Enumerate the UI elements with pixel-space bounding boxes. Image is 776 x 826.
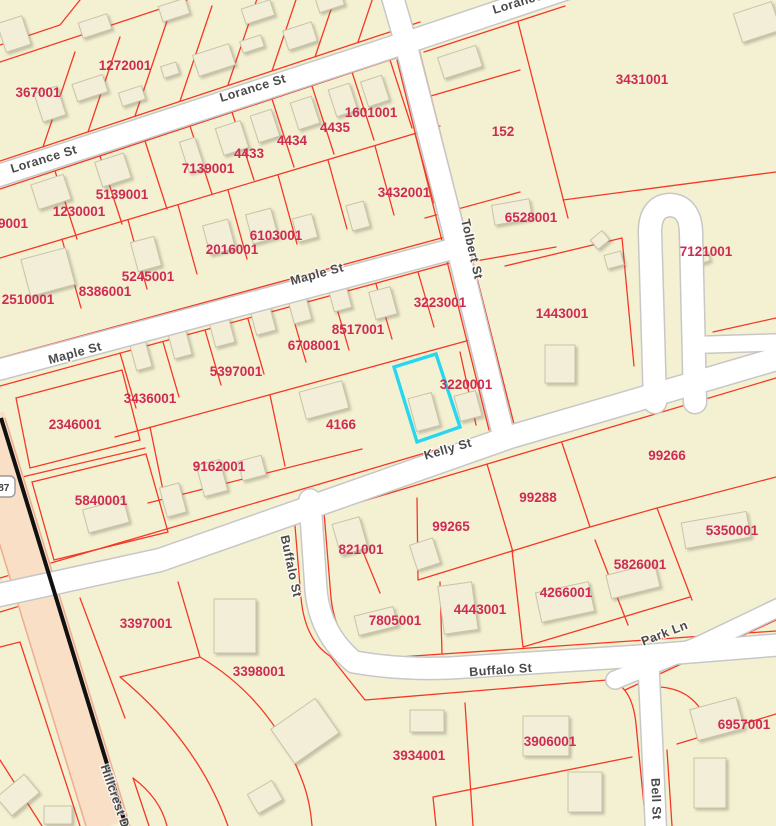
parcel-label-3398001[interactable]: 3398001 xyxy=(233,664,286,679)
parcel-label-3397001[interactable]: 3397001 xyxy=(120,616,173,631)
parcel-label-5397001[interactable]: 5397001 xyxy=(210,364,263,379)
parcel-label-6103001[interactable]: 6103001 xyxy=(250,228,303,243)
parcel-label-99265[interactable]: 99265 xyxy=(432,519,470,534)
street-label-bell-st: Bell St xyxy=(648,778,663,821)
parcel-label-5350001[interactable]: 5350001 xyxy=(706,523,759,538)
route-shield-label: 287 xyxy=(0,483,10,494)
parcel-label-9001[interactable]: 9001 xyxy=(0,216,29,231)
parcel-label-5840001[interactable]: 5840001 xyxy=(75,493,128,508)
parcel-label-7805001[interactable]: 7805001 xyxy=(369,613,422,628)
parcel-label-1230001[interactable]: 1230001 xyxy=(53,204,106,219)
building xyxy=(568,772,602,812)
parcel-label-367001[interactable]: 367001 xyxy=(15,85,61,100)
building xyxy=(214,599,256,653)
parcel-label-3223001[interactable]: 3223001 xyxy=(414,295,467,310)
parcel-label-3432001[interactable]: 3432001 xyxy=(378,185,431,200)
parcel-label-99266[interactable]: 99266 xyxy=(648,448,686,463)
parcel-label-7121001[interactable]: 7121001 xyxy=(680,244,733,259)
parcel-label-6957001[interactable]: 6957001 xyxy=(718,717,771,732)
parcel-label-7139001[interactable]: 7139001 xyxy=(182,161,235,176)
parcel-label-4434[interactable]: 4434 xyxy=(277,133,308,148)
parcel-label-5826001[interactable]: 5826001 xyxy=(614,557,667,572)
parcel-label-2016001[interactable]: 2016001 xyxy=(206,242,259,257)
parcel-label-4433[interactable]: 4433 xyxy=(234,146,265,161)
parcel-label-4443001[interactable]: 4443001 xyxy=(454,602,507,617)
parcel-label-6528001[interactable]: 6528001 xyxy=(505,210,558,225)
parcel-label-3906001[interactable]: 3906001 xyxy=(524,734,577,749)
map-svg: 287 Lorance StLorance StLorance StMaple … xyxy=(0,0,776,826)
building xyxy=(545,345,575,383)
parcel-label-8386001[interactable]: 8386001 xyxy=(79,284,132,299)
parcel-label-5245001[interactable]: 5245001 xyxy=(122,269,175,284)
parcel-label-9162001[interactable]: 9162001 xyxy=(193,459,246,474)
parcel-label-4166[interactable]: 4166 xyxy=(326,417,357,432)
building xyxy=(410,710,444,732)
parcel-label-4435[interactable]: 4435 xyxy=(320,120,351,135)
parcel-label-821001[interactable]: 821001 xyxy=(338,542,384,557)
parcel-map-canvas[interactable]: 287 Lorance StLorance StLorance StMaple … xyxy=(0,0,776,826)
parcel-label-99288[interactable]: 99288 xyxy=(519,490,557,505)
parcel-label-4266001[interactable]: 4266001 xyxy=(540,585,593,600)
road-loop-stub xyxy=(693,342,776,345)
parcel-label-152[interactable]: 152 xyxy=(492,124,515,139)
building xyxy=(44,806,72,824)
parcel-label-3934001[interactable]: 3934001 xyxy=(393,748,446,763)
parcel-label-3436001[interactable]: 3436001 xyxy=(124,391,177,406)
parcel-label-6708001[interactable]: 6708001 xyxy=(288,338,341,353)
parcel-label-1272001[interactable]: 1272001 xyxy=(99,58,152,73)
parcel-label-3220001[interactable]: 3220001 xyxy=(440,377,493,392)
parcel-label-5139001[interactable]: 5139001 xyxy=(96,187,149,202)
parcel-label-8517001[interactable]: 8517001 xyxy=(332,322,385,337)
route-shield-287: 287 xyxy=(0,476,15,497)
parcel-label-2510001[interactable]: 2510001 xyxy=(2,292,55,307)
parcel-label-1443001[interactable]: 1443001 xyxy=(536,306,589,321)
parcel-label-2346001[interactable]: 2346001 xyxy=(49,417,102,432)
building xyxy=(694,758,726,808)
parcel-label-3431001[interactable]: 3431001 xyxy=(616,72,669,87)
parcel-label-1601001[interactable]: 1601001 xyxy=(345,105,398,120)
